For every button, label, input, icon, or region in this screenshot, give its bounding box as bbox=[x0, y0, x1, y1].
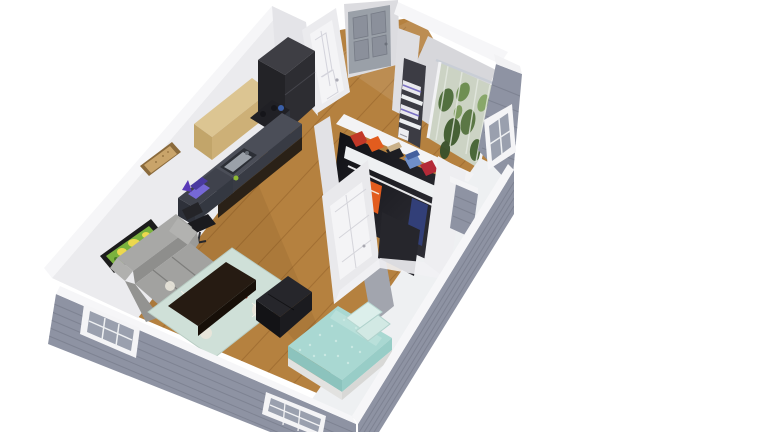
floorplan-render-stage bbox=[0, 0, 768, 432]
green-apple bbox=[234, 176, 239, 181]
apartment-3d-render bbox=[0, 0, 768, 432]
faucet bbox=[245, 151, 249, 155]
entry-door bbox=[348, 5, 391, 74]
entry-door-knob bbox=[385, 43, 388, 46]
bathroom-door-knob bbox=[335, 78, 338, 81]
closet-door-knob bbox=[363, 245, 366, 248]
blue-kettle bbox=[278, 105, 284, 111]
